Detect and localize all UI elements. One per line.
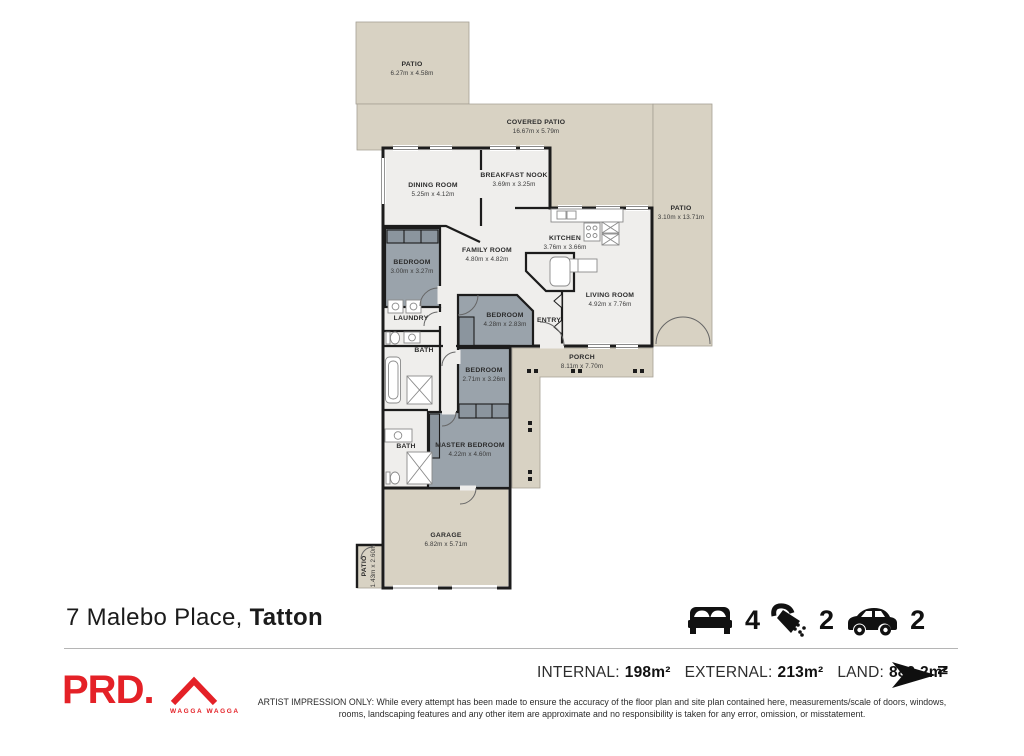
prd-location: WAGGA WAGGA: [170, 708, 240, 715]
svg-text:6.27m x 4.58m: 6.27m x 4.58m: [391, 70, 434, 77]
property-address: 7 Malebo Place, Tatton: [66, 604, 323, 632]
svg-text:6.82m x 5.71m: 6.82m x 5.71m: [425, 541, 468, 548]
svg-text:16.67m x 5.79m: 16.67m x 5.79m: [513, 128, 560, 135]
beds-count: 4: [745, 605, 760, 636]
shower-icon: [771, 603, 808, 637]
label-kitchen: KITCHEN: [549, 235, 581, 242]
cars-count: 2: [910, 605, 925, 636]
property-stats: 4 2 2: [686, 600, 925, 640]
label-family-room: FAMILY ROOM: [462, 247, 512, 254]
master-bedroom-area: [428, 412, 510, 488]
disclaimer-text: ARTIST IMPRESSION ONLY: While every atte…: [252, 696, 952, 721]
porch-posts: [527, 369, 644, 481]
label-bath1: BATH: [414, 347, 433, 354]
label-bedroom1: BEDROOM: [393, 259, 430, 266]
north-arrow: N: [888, 656, 950, 696]
svg-text:2.71m x 3.26m: 2.71m x 3.26m: [463, 376, 506, 383]
label-bedroom3: BEDROOM: [465, 367, 502, 374]
address-street: 7 Malebo Place,: [66, 604, 243, 631]
label-garage: GARAGE: [430, 532, 462, 539]
label-dining: DINING ROOM: [408, 182, 458, 189]
label-porch: PORCH: [569, 354, 595, 361]
label-living-room: LIVING ROOM: [586, 292, 635, 299]
label-patio-right: PATIO: [670, 205, 691, 212]
bed-icon: [686, 603, 734, 637]
label-master-bedroom: MASTER BEDROOM: [435, 442, 505, 449]
svg-text:4.80m x 4.82m: 4.80m x 4.82m: [466, 256, 509, 263]
label-covered-patio: COVERED PATIO: [507, 119, 566, 126]
prd-logo: PRD.: [62, 668, 154, 713]
label-breakfast-nook: BREAKFAST NOOK: [480, 172, 547, 179]
label-laundry: LAUNDRY: [394, 315, 429, 322]
svg-text:PATIO: PATIO: [361, 555, 368, 576]
land-label: LAND:: [837, 664, 884, 681]
svg-text:8.11m x 7.70m: 8.11m x 7.70m: [561, 363, 603, 370]
svg-text:5.25m x 4.12m: 5.25m x 4.12m: [412, 191, 455, 198]
svg-text:3.10m x 13.71m: 3.10m x 13.71m: [658, 214, 705, 221]
footer-divider: [64, 648, 958, 649]
external-label: EXTERNAL:: [685, 664, 773, 681]
internal-label: INTERNAL:: [537, 664, 620, 681]
baths-count: 2: [819, 605, 834, 636]
north-letter: N: [935, 665, 950, 675]
svg-text:4.22m x 4.60m: 4.22m x 4.60m: [449, 451, 492, 458]
floor-plan: PATIO 6.27m x 4.58m COVERED PATIO 16.67m…: [0, 0, 1024, 600]
external-value: 213m²: [778, 664, 824, 681]
label-bath2: BATH: [396, 443, 415, 450]
svg-text:3.69m x 3.25m: 3.69m x 3.25m: [493, 181, 536, 188]
svg-text:3.76m x 3.66m: 3.76m x 3.66m: [544, 244, 587, 251]
label-patio-tl: PATIO: [401, 61, 422, 68]
address-suburb: Tatton: [250, 604, 323, 631]
svg-text:4.92m x 7.76m: 4.92m x 7.76m: [589, 301, 632, 308]
label-bedroom2: BEDROOM: [486, 312, 523, 319]
svg-text:3.00m x 3.27m: 3.00m x 3.27m: [391, 268, 434, 275]
svg-text:4.28m x 2.83m: 4.28m x 2.83m: [484, 321, 527, 328]
svg-text:1.43m x 2.60m: 1.43m x 2.60m: [370, 545, 377, 588]
label-entry: ENTRY: [537, 317, 561, 324]
internal-value: 198m²: [625, 664, 671, 681]
floorplan-page: PATIO 6.27m x 4.58m COVERED PATIO 16.67m…: [0, 0, 1024, 756]
car-icon: [845, 604, 899, 636]
patio-right-area: [653, 104, 712, 346]
prd-roof-icon: [170, 676, 218, 706]
